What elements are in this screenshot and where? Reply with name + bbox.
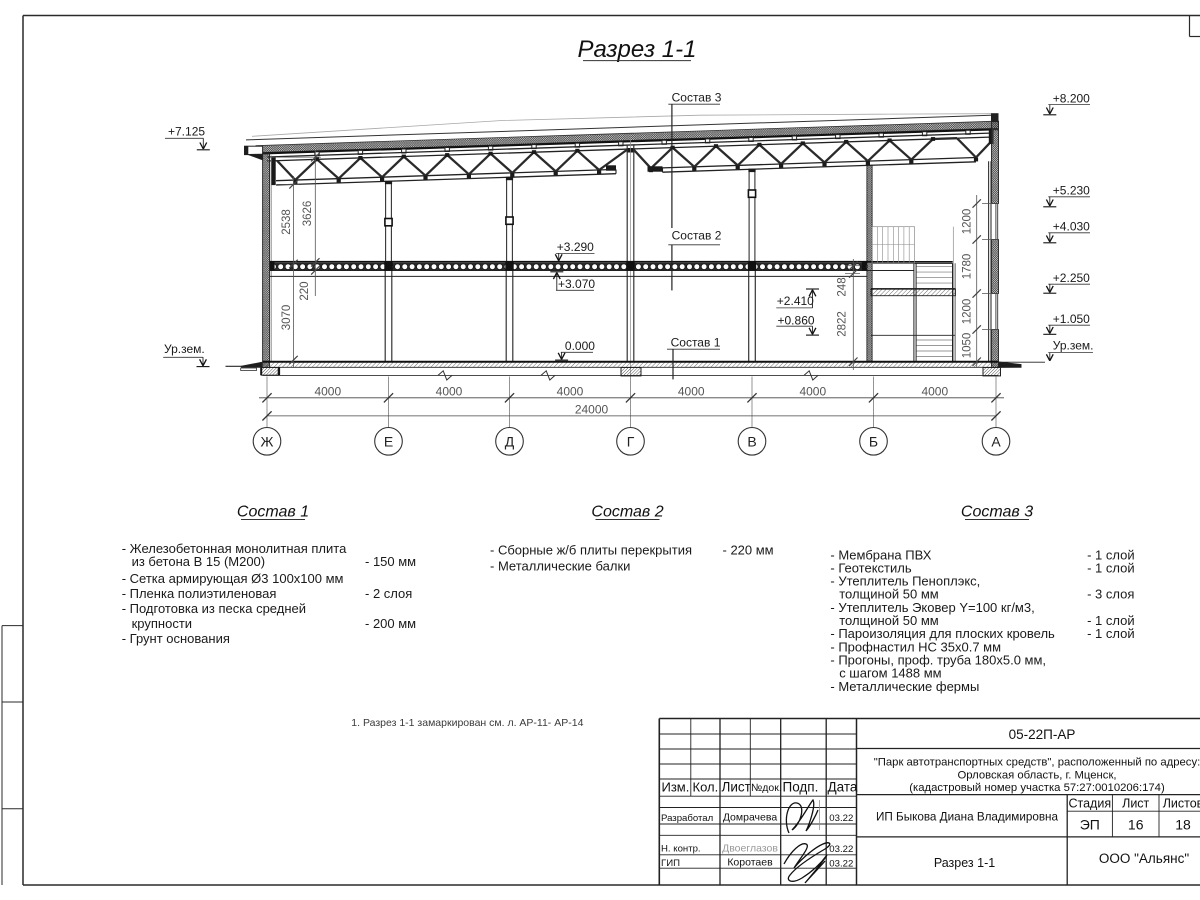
- svg-text:Двоеглазов: Двоеглазов: [722, 843, 778, 855]
- svg-text:1780: 1780: [962, 254, 974, 280]
- svg-text:- Сборные ж/б плиты перекрытия: - Сборные ж/б плиты перекрытия: [490, 543, 692, 558]
- svg-text:Стадия: Стадия: [1068, 797, 1111, 811]
- svg-text:1050: 1050: [962, 333, 974, 359]
- svg-text:18: 18: [1175, 817, 1191, 833]
- svg-text:Разрез 1-1: Разрез 1-1: [934, 856, 995, 870]
- svg-text:Состав 1: Состав 1: [671, 336, 721, 350]
- svg-text:1. Разрез 1-1 замаркирован см.: 1. Разрез 1-1 замаркирован см. л. АР-11-…: [351, 717, 583, 729]
- svg-text:- Грунт основания: - Грунт основания: [122, 631, 230, 646]
- svg-text:220: 220: [299, 281, 311, 300]
- svg-text:Кол.: Кол.: [693, 780, 719, 795]
- svg-text:4000: 4000: [557, 384, 584, 398]
- svg-text:4000: 4000: [921, 384, 948, 398]
- svg-text:3626: 3626: [302, 201, 314, 227]
- svg-text:+8.200: +8.200: [1053, 92, 1090, 106]
- svg-text:- 1 слой: - 1 слой: [1087, 560, 1135, 575]
- svg-text:4000: 4000: [799, 384, 826, 398]
- svg-text:- Пленка полиэтиленовая: - Пленка полиэтиленовая: [122, 586, 277, 601]
- svg-text:Подп.: Подп.: [783, 780, 819, 795]
- svg-text:- Подготовка из песка средней: - Подготовка из песка средней: [122, 601, 306, 616]
- svg-text:№док.: №док.: [751, 782, 782, 794]
- svg-text:+7.125: +7.125: [168, 125, 205, 139]
- svg-text:2822: 2822: [837, 311, 849, 337]
- svg-text:Разработал: Разработал: [661, 813, 713, 824]
- svg-text:Лист: Лист: [1122, 797, 1149, 811]
- svg-text:03.22: 03.22: [829, 844, 853, 855]
- svg-text:- 220 мм: - 220 мм: [723, 543, 774, 558]
- svg-text:Е: Е: [384, 433, 393, 449]
- svg-text:03.22: 03.22: [829, 859, 853, 870]
- svg-text:2538: 2538: [281, 209, 293, 235]
- svg-text:Листов: Листов: [1163, 797, 1200, 811]
- svg-text:+3.290: +3.290: [557, 240, 594, 254]
- svg-text:- 200 мм: - 200 мм: [365, 616, 416, 631]
- svg-text:ИП Быкова Диана Владимировна: ИП Быкова Диана Владимировна: [876, 811, 1059, 824]
- svg-text:Ур.зем.: Ур.зем.: [1053, 339, 1094, 353]
- svg-text:+2.410: +2.410: [777, 294, 814, 308]
- svg-text:Н. контр.: Н. контр.: [661, 844, 701, 855]
- svg-text:(кадастровый номер участка 57:: (кадастровый номер участка 57:27:0010206…: [909, 782, 1165, 794]
- svg-text:1200: 1200: [962, 209, 974, 235]
- svg-text:Лист: Лист: [722, 780, 751, 795]
- svg-text:4000: 4000: [314, 384, 341, 398]
- svg-text:4000: 4000: [436, 384, 463, 398]
- svg-text:- Металлические фермы: - Металлические фермы: [830, 679, 979, 694]
- svg-text:Домрачева: Домрачева: [723, 812, 778, 824]
- svg-text:Б: Б: [869, 433, 878, 449]
- svg-text:0.000: 0.000: [565, 339, 595, 353]
- svg-text:- 150 мм: - 150 мм: [365, 554, 416, 569]
- svg-text:"Парк автотранспортных средств: "Парк автотранспортных средств", располо…: [874, 757, 1200, 769]
- svg-text:4000: 4000: [678, 384, 705, 398]
- svg-text:Состав 1: Состав 1: [237, 504, 309, 521]
- svg-text:248: 248: [837, 277, 849, 296]
- svg-text:+5.230: +5.230: [1053, 184, 1090, 198]
- svg-text:из бетона В 15 (М200): из бетона В 15 (М200): [132, 554, 266, 569]
- svg-text:Коротаев: Коротаев: [727, 857, 773, 869]
- svg-text:- Сетка армирующая Ø3 100х100: - Сетка армирующая Ø3 100х100 мм: [122, 571, 344, 586]
- svg-text:Ж: Ж: [261, 433, 274, 449]
- svg-text:Разрез 1-1: Разрез 1-1: [578, 36, 697, 63]
- svg-text:Ур.зем.: Ур.зем.: [164, 342, 205, 356]
- svg-text:крупности: крупности: [132, 616, 192, 631]
- svg-text:Дата: Дата: [828, 780, 858, 795]
- svg-text:Орловская область, г. Мценск,: Орловская область, г. Мценск,: [957, 769, 1116, 781]
- svg-text:- Металлические балки: - Металлические балки: [490, 558, 630, 573]
- svg-text:Д: Д: [505, 433, 515, 449]
- svg-text:А: А: [991, 433, 1001, 449]
- svg-text:Изм.: Изм.: [662, 780, 690, 795]
- svg-text:ООО "Альянс": ООО "Альянс": [1099, 851, 1189, 866]
- svg-text:16: 16: [1128, 817, 1144, 833]
- svg-text:ГИП: ГИП: [661, 858, 680, 869]
- svg-text:+0.860: +0.860: [778, 314, 815, 328]
- svg-text:ЭП: ЭП: [1080, 817, 1100, 833]
- svg-text:Состав 3: Состав 3: [672, 91, 722, 105]
- svg-text:+4.030: +4.030: [1053, 220, 1090, 234]
- svg-text:- 3 слоя: - 3 слоя: [1087, 587, 1134, 602]
- svg-text:3070: 3070: [281, 305, 293, 331]
- svg-text:Г: Г: [627, 433, 635, 449]
- svg-text:+3.070: +3.070: [558, 277, 595, 291]
- svg-text:05-22П-АР: 05-22П-АР: [1009, 727, 1076, 742]
- svg-text:03.22: 03.22: [829, 813, 853, 824]
- svg-text:24000: 24000: [575, 402, 609, 416]
- svg-text:Состав 2: Состав 2: [591, 504, 663, 521]
- svg-text:В: В: [747, 433, 756, 449]
- svg-text:+2.250: +2.250: [1053, 271, 1090, 285]
- svg-text:Состав 2: Состав 2: [672, 229, 722, 243]
- svg-text:1200: 1200: [962, 299, 974, 325]
- svg-text:+1.050: +1.050: [1053, 312, 1090, 326]
- svg-text:- 1 слой: - 1 слой: [1087, 626, 1135, 641]
- svg-text:- 2 слоя: - 2 слоя: [365, 586, 412, 601]
- svg-text:Состав 3: Состав 3: [961, 504, 1033, 521]
